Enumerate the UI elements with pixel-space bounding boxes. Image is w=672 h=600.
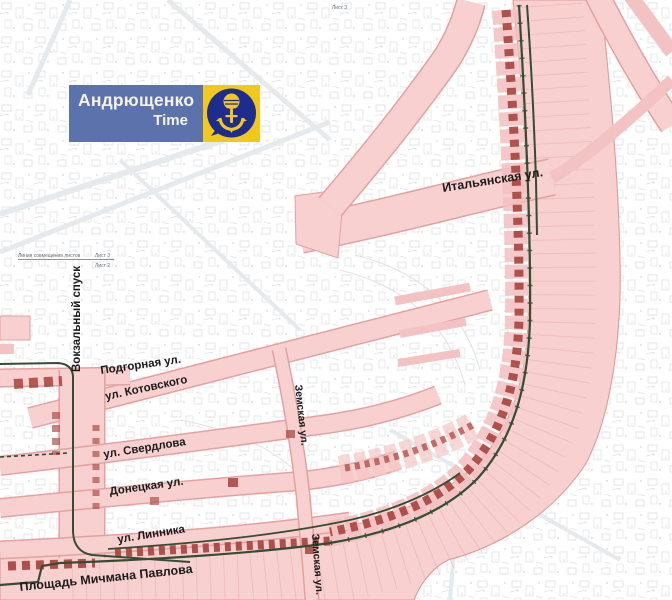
- sheet-below-label: Лист 2: [95, 263, 110, 269]
- map-screenshot: Лист 3 Линия совмещения листов Лист 3 Ли…: [0, 0, 672, 600]
- logo: Андрющенко Time: [69, 85, 260, 142]
- logo-title: Андрющенко: [78, 90, 193, 111]
- join-line-label: Линия совмещения листов: [18, 253, 81, 259]
- logo-icon-tile: [203, 85, 260, 142]
- logo-subtitle: Time: [78, 111, 193, 131]
- sheet-note-top: Лист 3: [332, 5, 347, 11]
- microphone-anchor-icon: [203, 85, 260, 142]
- sheet-above-label: Лист 3: [95, 253, 110, 259]
- street-label-vokzalny-spusk: Вокзальный спуск: [71, 266, 83, 372]
- logo-text-panel: Андрющенко Time: [69, 85, 203, 142]
